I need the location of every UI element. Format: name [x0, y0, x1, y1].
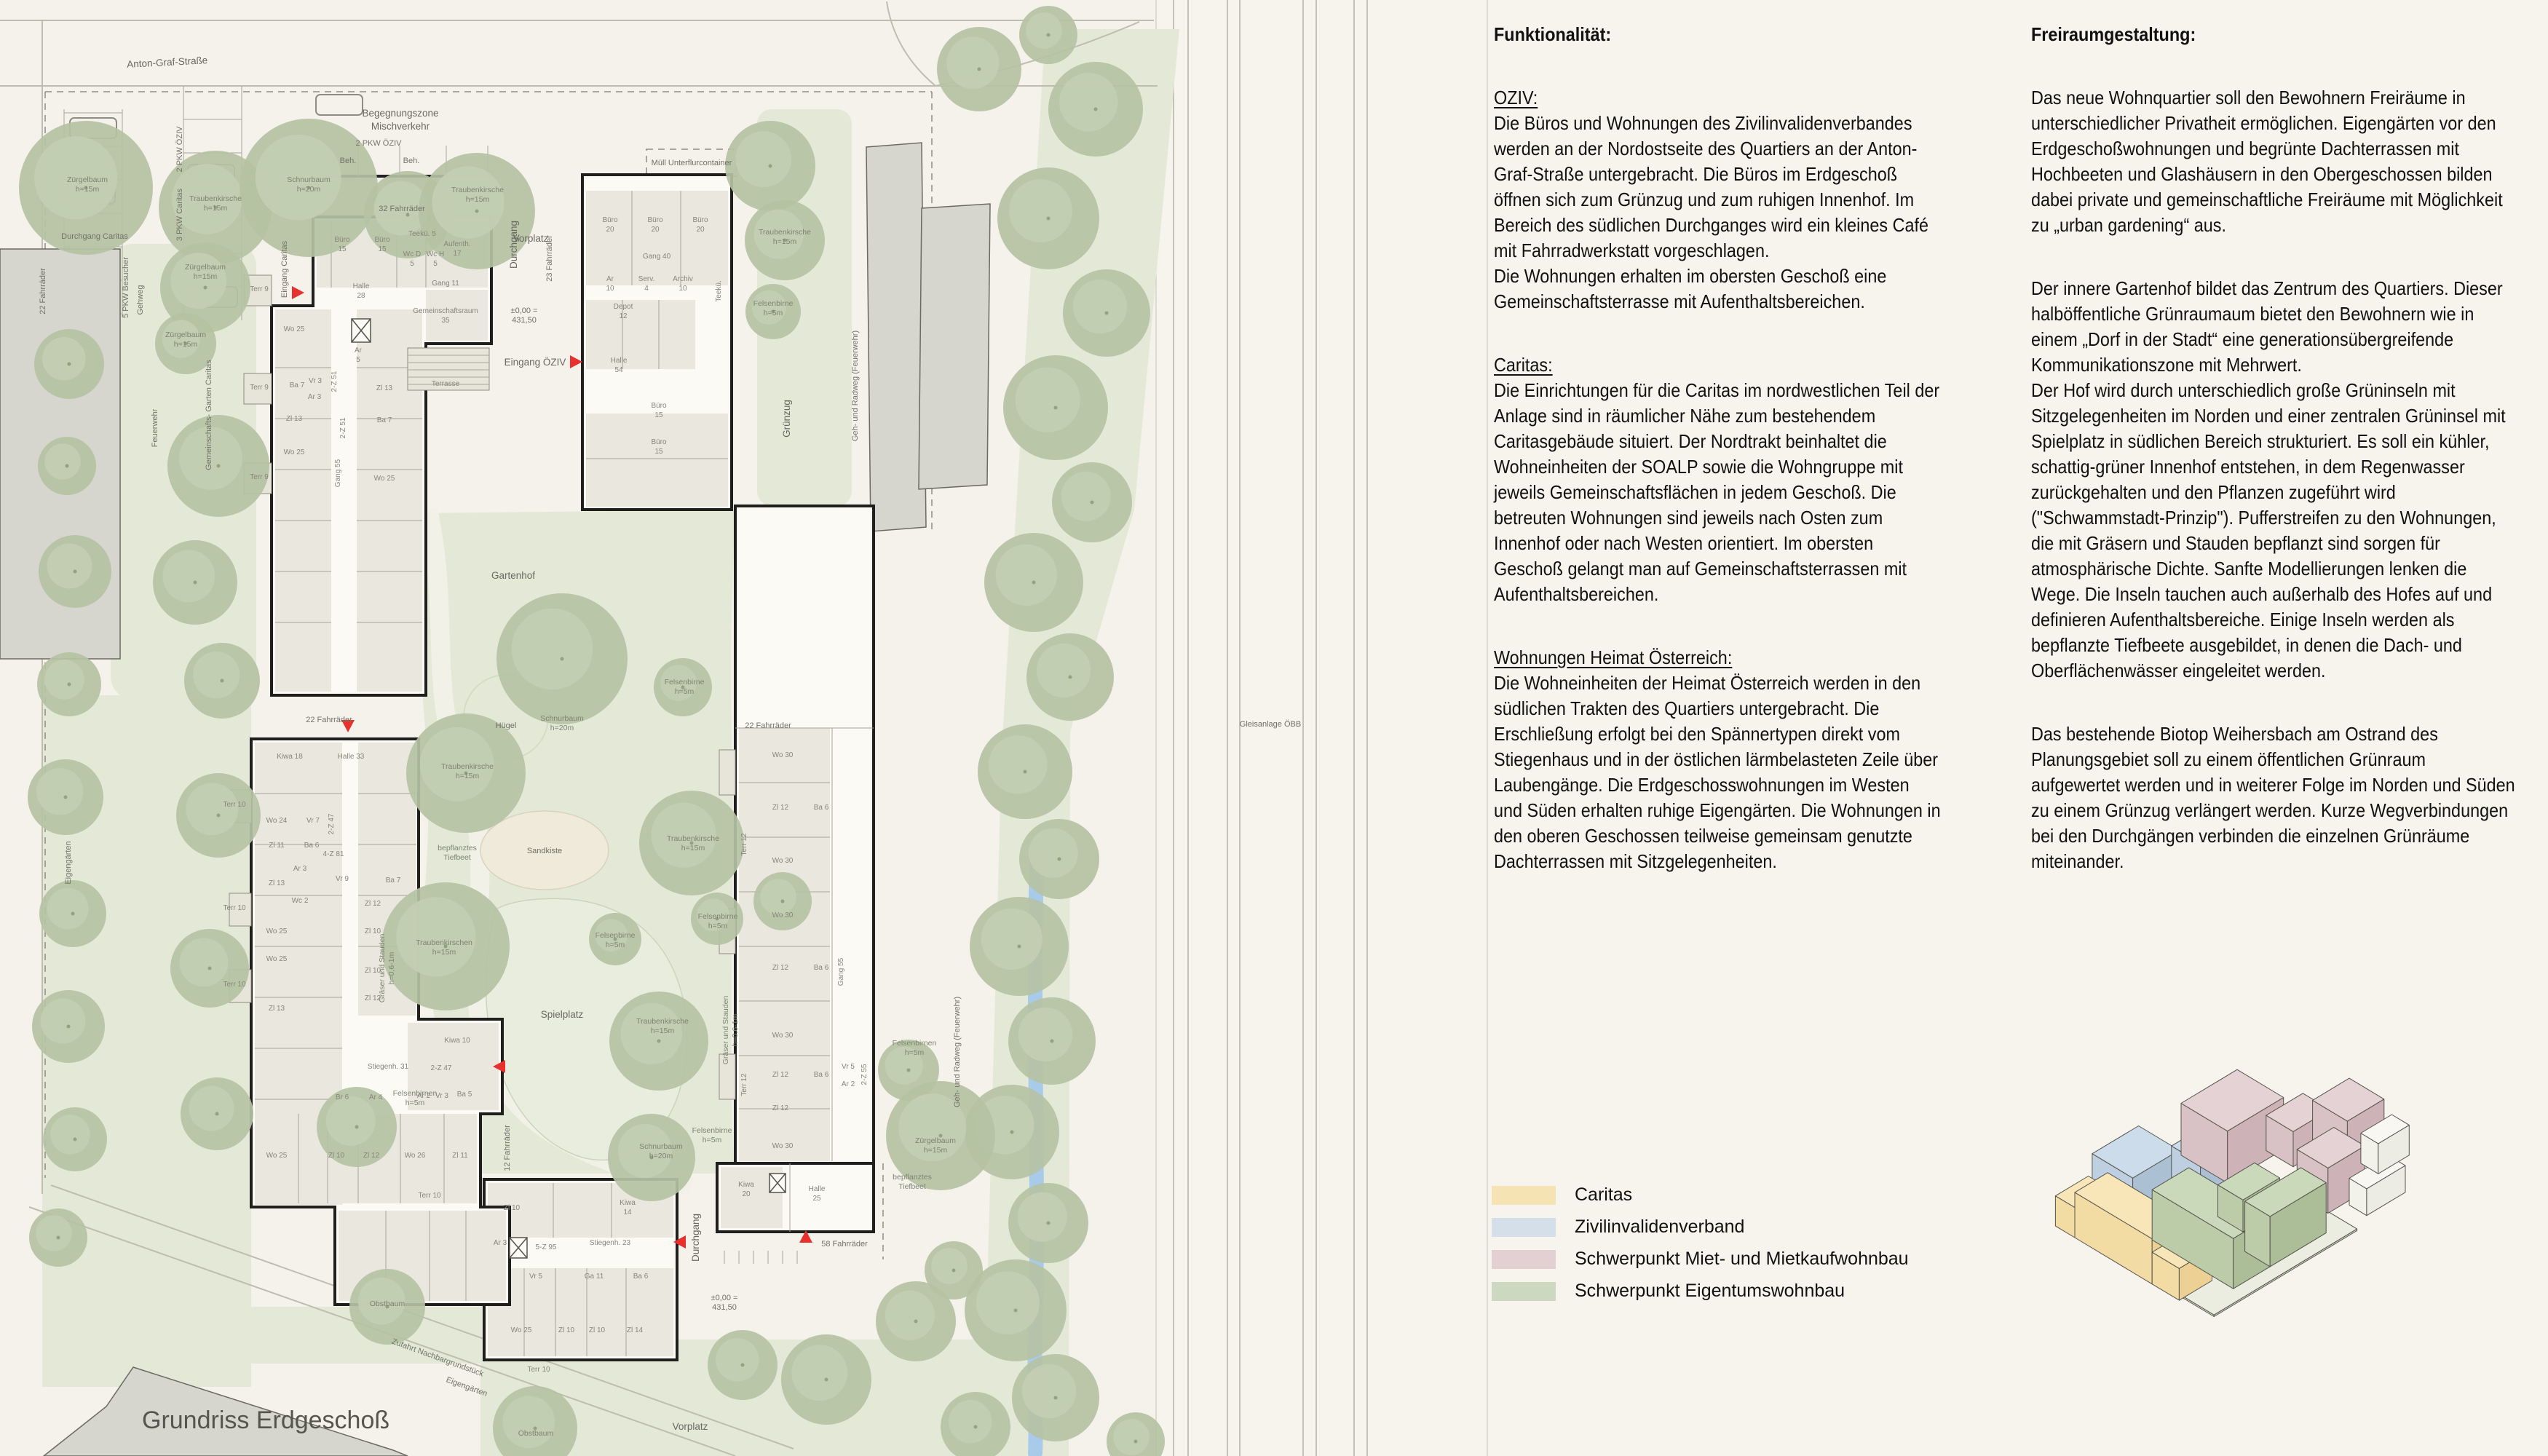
tree-icon [28, 759, 103, 835]
plan-label: Ba 7 [386, 877, 401, 885]
tree-icon [153, 540, 237, 625]
legend-label: Zivilinvalidenverband [1575, 1216, 1744, 1238]
tree-icon [753, 872, 812, 930]
plan-label: 2-Z 51 [339, 417, 347, 438]
plan-label: Terr 10 [223, 981, 246, 989]
plan-label: Wo 26 [405, 1152, 426, 1160]
tree-icon [984, 533, 1083, 632]
plan-label: Vr 3 [309, 377, 322, 385]
text-section: OZIV:Die Büros und Wohnungen des Zivilin… [1494, 85, 2005, 314]
column-title: Funktionalität: [1494, 22, 2005, 47]
plan-label: Zl 12 [772, 1071, 789, 1079]
building-oziv [582, 175, 732, 510]
plan-label: Ba 5 [457, 1091, 472, 1099]
plan-label: 3 PKW Caritas [175, 188, 184, 241]
plan-label: Wo 25 [511, 1326, 532, 1334]
plan-label: Ga 11 [585, 1273, 604, 1281]
tree-icon [37, 652, 101, 716]
plan-label: Durchgang Caritas [61, 232, 128, 241]
plan-label: Wo 25 [266, 927, 288, 935]
plan-label: 5-Z 95 [536, 1243, 557, 1251]
section-heading: Caritas: [1494, 352, 2005, 378]
tree-icon [176, 773, 261, 858]
tree-icon [38, 437, 96, 495]
tree-icon [1003, 355, 1108, 460]
plan-label: Zl 13 [376, 384, 393, 392]
legend-label: Caritas [1575, 1184, 1632, 1206]
plan-label: ±0,00 =431,50 [711, 1294, 738, 1312]
plan-label: Ba 7 [377, 416, 392, 424]
plan-label: Wo 30 [772, 1032, 794, 1040]
plan-label: 5 PKW Besucher [122, 257, 130, 318]
plan-label: Vorplatz [673, 1421, 708, 1432]
plan-label: Ba 6 [814, 964, 829, 972]
plan-label: Beh. [340, 157, 357, 165]
tree-icon [1019, 819, 1099, 899]
plan-label: 23 Fahrräder [545, 235, 554, 282]
plan-label: Terr 12 [740, 833, 748, 856]
plan-label: 12 Fahrräder [503, 1125, 512, 1171]
text-section: Das neue Wohnquartier soll den Bewohnern… [2031, 85, 2542, 238]
plan-label: Vr 7 [306, 817, 320, 825]
legend-item: Caritas [1492, 1184, 1909, 1206]
tree-icon [639, 791, 744, 895]
plan-label: Ar 3 [494, 1239, 507, 1247]
plan-label: 32 Fahrräder [379, 205, 425, 213]
tree-icon [43, 1107, 107, 1171]
plan-label: Begegnungszone [362, 108, 438, 119]
plan-label: Halle 33 [338, 753, 365, 761]
plan-label: Eingang ÖZIV [505, 357, 566, 368]
plan-label: Wo 30 [772, 911, 794, 919]
plan-label: Vr 5 [842, 1063, 855, 1071]
tree-icon [1063, 269, 1150, 357]
section-body: Das neue Wohnquartier soll den Bewohnern… [2031, 85, 2542, 238]
plan-label: Terrasse [432, 380, 460, 388]
plan-label: Terr 10 [418, 1192, 441, 1200]
legend-swatch [1492, 1186, 1556, 1205]
tree-icon [978, 724, 1072, 819]
plan-label: Geh- und Radweg (Feuerwehr) [851, 331, 860, 441]
plan-label: Kiwa 10 [444, 1037, 470, 1045]
section-body: Die Wohneinheiten der Heimat Österreich … [1494, 670, 2005, 874]
plan-label: Terr 12 [740, 1073, 748, 1096]
legend-swatch [1492, 1282, 1556, 1301]
legend-swatch [1492, 1218, 1556, 1237]
plan-label: Obstbaum [518, 1429, 554, 1438]
plan-label: Wo 25 [374, 475, 395, 483]
plan-label: Terr 9 [250, 384, 269, 392]
tree-icon [1008, 997, 1096, 1085]
plan-label: Zl 12 [365, 900, 381, 908]
tree-icon [609, 992, 708, 1091]
plan-label: Zl 11 [269, 842, 285, 850]
tree-icon [184, 643, 260, 719]
plan-label: Ba 6 [633, 1273, 649, 1281]
plan-label: Durchgang [508, 221, 519, 269]
plan-label: Wo 25 [266, 1152, 288, 1160]
plan-label: Zl 12 [772, 804, 789, 812]
text-section: Caritas:Die Einrichtungen für die Carita… [1494, 352, 2005, 607]
column-funktionalitaet: Funktionalität: OZIV:Die Büros und Wohnu… [1494, 22, 2005, 874]
plan-label: Gleisanlage ÖBB [1240, 720, 1301, 729]
legend-label: Schwerpunkt Eigentumswohnbau [1575, 1281, 1845, 1302]
plan-label: Ar 2 [842, 1080, 855, 1088]
plan-label: Terr 9 [250, 473, 269, 481]
plan-label: Sandkiste [527, 847, 562, 855]
presentation-sheet: Anton-Graf-StraßeBegegnungszoneMischverk… [0, 0, 2548, 1456]
section-body: Der innere Gartenhof bildet das Zentrum … [2031, 276, 2542, 684]
plan-label: Wo 25 [284, 448, 305, 456]
plan-label: Vr 5 [529, 1273, 542, 1281]
section-body: Das bestehende Biotop Weihersbach am Ost… [2031, 721, 2542, 874]
plan-label: Wo 25 [266, 955, 288, 963]
legend-swatch [1492, 1250, 1556, 1269]
plan-label: Eigengärten [64, 841, 73, 884]
plan-label: Zl 10 [328, 1152, 345, 1160]
tree-icon [708, 1330, 778, 1400]
plan-label: Zl 12 [365, 994, 381, 1002]
plan-label: Wo 30 [772, 751, 794, 759]
plan-label: 2-Z 51 [331, 371, 339, 392]
plan-label: Stiegenh. 23 [590, 1239, 631, 1247]
plan-label: Zl 10 [504, 1204, 521, 1212]
plan-label: Zl 10 [365, 927, 381, 935]
plan-label: Br 6 [336, 1093, 349, 1101]
plan-label: Grünzug [781, 400, 792, 438]
railway-area [1156, 0, 1489, 1456]
tree-icon [167, 415, 269, 517]
plan-label: Zl 10 [589, 1326, 606, 1334]
plan-label: Vr 9 [336, 875, 349, 883]
plan-label: Wo 30 [772, 1142, 794, 1150]
legend-item: Schwerpunkt Miet- und Mietkaufwohnbau [1492, 1249, 1909, 1270]
plan-label: Gartenhof [491, 570, 535, 581]
plan-label: 58 Fahrräder [821, 1240, 868, 1249]
plan-label: Gang 55 [334, 459, 342, 487]
plan-label: Feuerwehr [151, 408, 159, 447]
legend-item: Zivilinvalidenverband [1492, 1216, 1909, 1238]
plan-label: 2 PKW ÖZIV [356, 139, 403, 148]
plan-label: 22 Fahrräder [39, 268, 47, 314]
tree-icon [1026, 633, 1114, 721]
section-heading: OZIV: [1494, 85, 2005, 111]
plan-label: Hügel [496, 721, 517, 730]
tree-icon [781, 1334, 871, 1425]
plan-label: Gehweg [136, 285, 145, 315]
plan-label: 2-Z 47 [328, 813, 336, 834]
plan-label: Vr 3 [435, 1092, 448, 1100]
plan-label: Wo 30 [772, 857, 794, 865]
plan-label: Ba 6 [304, 842, 320, 850]
plan-label: Ba 7 [290, 381, 305, 389]
tree-icon [1052, 462, 1132, 542]
plan-label: Zl 10 [558, 1326, 575, 1334]
plan-label: Kiwa 18 [277, 753, 303, 761]
tree-icon [29, 1208, 87, 1267]
plan-label: ±0,00 =431,50 [511, 306, 538, 325]
tree-icon [1012, 1354, 1099, 1441]
tree-icon [925, 1241, 983, 1299]
tree-icon [34, 329, 104, 399]
tree-icon [170, 929, 249, 1008]
tree-icon [39, 880, 106, 947]
plan-label: Durchgang [690, 1214, 701, 1262]
text-section: Das bestehende Biotop Weihersbach am Ost… [2031, 721, 2542, 874]
legend: CaritasZivilinvalidenverbandSchwerpunkt … [1492, 1174, 1909, 1302]
plan-label: 2 PKW ÖZIV [175, 126, 184, 173]
plan-label: 2-Z 55 [860, 1064, 869, 1085]
plan-label: Ar 3 [308, 393, 322, 401]
plan-label: 22 Fahrräder [306, 716, 352, 724]
plan-label: Müll Unterflurcontainer [652, 159, 732, 167]
plan-label: Beh. [403, 157, 420, 165]
plan-label: Ar 3 [293, 865, 307, 873]
column-freiraumgestaltung: Freiraumgestaltung: Das neue Wohnquartie… [2031, 22, 2542, 874]
plan-label: 4-Z 81 [323, 850, 344, 858]
plan-label: Zl 12 [772, 964, 789, 972]
plan-label: Zl 12 [772, 1104, 789, 1112]
tree-icon [181, 1077, 253, 1150]
tree-icon [937, 27, 1021, 111]
text-section: Der innere Gartenhof bildet das Zentrum … [2031, 276, 2542, 684]
plan-label: 2-Z 47 [431, 1064, 452, 1072]
plan-label: Ba 6 [814, 1071, 829, 1079]
section-heading: Wohnungen Heimat Österreich: [1494, 645, 2005, 670]
plan-label: Spielplatz [541, 1009, 584, 1020]
plan-label: Zl 14 [627, 1326, 644, 1334]
tree-icon [496, 593, 628, 724]
plan-label: Wo 25 [284, 325, 305, 333]
tree-icon [970, 897, 1069, 996]
legend-item: Schwerpunkt Eigentumswohnbau [1492, 1281, 1909, 1302]
plan-label: 22 Fahrräder [745, 721, 791, 730]
tree-icon [1019, 6, 1077, 64]
plan-label: Ba 6 [814, 804, 829, 812]
tree-icon [32, 990, 105, 1063]
plan-label: Obstbaum [370, 1299, 405, 1308]
plan-label: Zl 13 [269, 1005, 285, 1013]
plan-label: Terr 10 [527, 1366, 550, 1374]
tree-icon [39, 535, 111, 608]
plan-label: Gemeinschafts- Garten Caritas [205, 360, 213, 470]
plan-label: Eingang Caritas [280, 240, 289, 298]
plan-label: Gang 55 [837, 957, 845, 986]
plan-label: Wc 2 [292, 897, 309, 905]
plan-label: Terr 9 [250, 285, 269, 293]
legend-label: Schwerpunkt Miet- und Mietkaufwohnbau [1575, 1249, 1909, 1270]
column-title: Freiraumgestaltung: [2031, 22, 2542, 47]
tree-icon [1008, 1183, 1088, 1263]
plan-label: Zl 13 [286, 415, 303, 423]
tree-icon [997, 167, 1099, 269]
plan-label: Stiegenh. 31 [368, 1063, 409, 1071]
section-body: Die Einrichtungen für die Caritas im nor… [1494, 378, 2005, 607]
site-plan: Anton-Graf-StraßeBegegnungszoneMischverk… [0, 0, 1489, 1456]
section-body: Die Büros und Wohnungen des Zivilinvalid… [1494, 111, 2005, 314]
plan-label: Zl 12 [363, 1152, 380, 1160]
plan-label: Zl 11 [452, 1152, 468, 1160]
axonometric-diagram [1922, 997, 2548, 1456]
plan-label: Teekü. 5 [408, 230, 436, 238]
plan-label: Ar 4 [369, 1093, 383, 1101]
plan-label: Gang 11 [432, 280, 459, 288]
plan-title: Grundriss Erdgeschoß [142, 1406, 389, 1434]
text-section: Wohnungen Heimat Österreich:Die Wohneinh… [1494, 645, 2005, 874]
plan-label: Wo 24 [266, 817, 288, 825]
plan-label: Zl 13 [269, 879, 285, 887]
tree-icon [725, 121, 815, 211]
plan-label: Terr 10 [223, 801, 246, 809]
plan-label: Gang 40 [643, 253, 671, 261]
plan-label: Zl 10 [365, 967, 381, 975]
plan-label: Ar 2 [417, 1092, 431, 1100]
plan-label: Geh- und Radweg (Feuerwehr) [953, 997, 962, 1107]
plan-label: Teekü. [715, 280, 723, 301]
plan-label: Terr 10 [223, 904, 246, 912]
tree-icon [1048, 62, 1143, 157]
plan-label: Mischverkehr [371, 121, 430, 132]
